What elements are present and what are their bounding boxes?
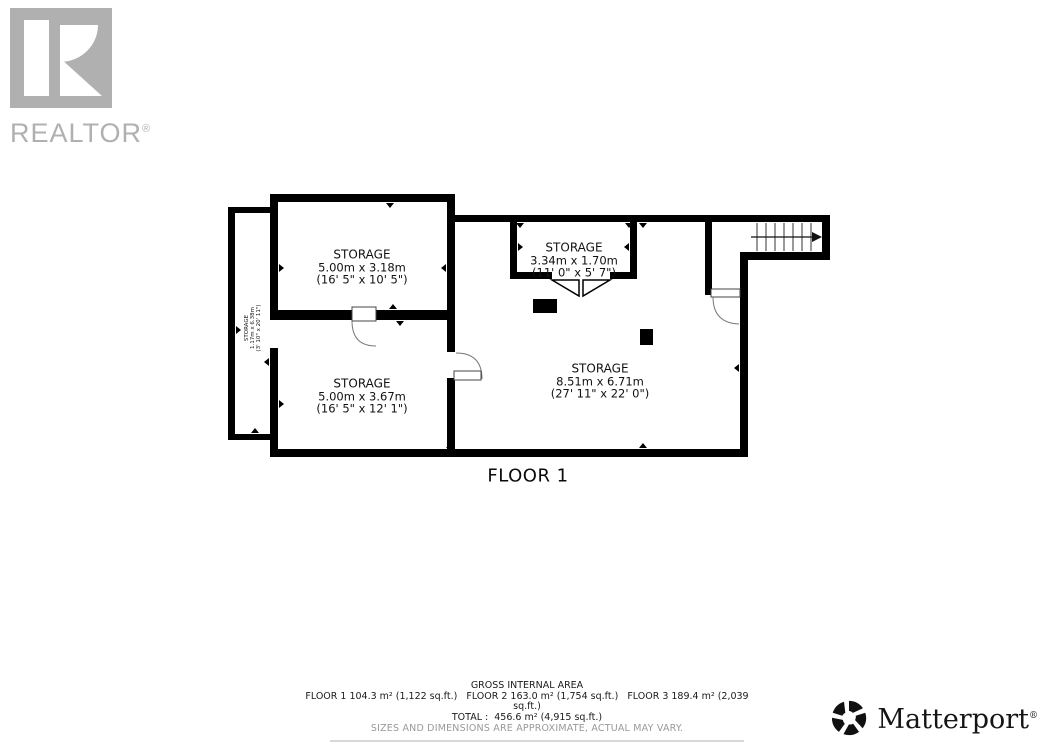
dimension-ticks	[236, 203, 739, 448]
room-size-imperial: (11' 0" x 5' 7")	[530, 266, 618, 279]
room-label-storage-main: STORAGE 8.51m x 6.71m (27' 11" x 22' 0")	[551, 362, 650, 400]
room-label-storage-bottom-left: STORAGE 5.00m x 3.67m (16' 5" x 12' 1")	[316, 377, 407, 415]
matterport-pinwheel-icon	[830, 699, 868, 737]
realtor-wordmark: REALTOR®	[10, 116, 150, 146]
door-leaf	[352, 307, 376, 321]
matterport-logo: Matterport®	[830, 697, 1038, 739]
bottom-divider	[330, 740, 744, 742]
walls	[228, 194, 830, 457]
door-swing-arc	[713, 297, 739, 324]
room-size-imperial: (27' 11" x 22' 0")	[551, 387, 650, 400]
door-swing-arc	[456, 353, 482, 379]
double-door-left-leaf	[552, 280, 579, 296]
summary-total: TOTAL : 456.6 m² (4,915 sq.ft.)	[305, 713, 748, 724]
doors	[352, 280, 740, 380]
realtor-label: REALTOR	[10, 118, 142, 148]
area-summary: GROSS INTERNAL AREA FLOOR 1 104.3 m² (1,…	[305, 681, 748, 735]
registered-trademark-icon: ®	[1029, 711, 1038, 721]
double-door-right-leaf	[583, 280, 610, 296]
room-name: STORAGE	[551, 362, 650, 375]
summary-title: GROSS INTERNAL AREA	[305, 681, 748, 692]
door-leaf	[454, 371, 481, 380]
room-size-imperial: (16' 5" x 10' 5")	[316, 273, 407, 286]
room-label-storage-top-left: STORAGE 5.00m x 3.18m (16' 5" x 10' 5")	[316, 248, 407, 286]
floor-plan-drawing	[0, 0, 1054, 745]
room-label-storage-strip: STORAGE 1.17m x 6.38m (3' 10" x 20' 11")	[244, 304, 262, 351]
door-leaf	[711, 289, 740, 297]
room-name: STORAGE	[316, 248, 407, 261]
realtor-logo: REALTOR®	[10, 8, 150, 146]
stairs	[751, 223, 822, 251]
matterport-label: Matterport	[877, 704, 1029, 735]
room-size-imperial: (3' 10" x 20' 11")	[256, 304, 262, 351]
realtor-block-r-icon	[10, 8, 112, 108]
summary-disclaimer: SIZES AND DIMENSIONS ARE APPROXIMATE, AC…	[305, 724, 748, 735]
room-name: STORAGE	[316, 377, 407, 390]
floor-title: FLOOR 1	[487, 466, 568, 487]
room-label-storage-middle: STORAGE 3.34m x 1.70m (11' 0" x 5' 7")	[530, 241, 618, 279]
room-name: STORAGE	[530, 241, 618, 254]
stairs-direction-arrow-icon	[751, 232, 822, 242]
floor-plan-page: REALTOR®	[0, 0, 1054, 745]
registered-trademark-icon: ®	[142, 123, 150, 135]
door-swing-arc	[352, 321, 376, 346]
columns	[533, 299, 653, 345]
room-size-imperial: (16' 5" x 12' 1")	[316, 402, 407, 415]
matterport-wordmark: Matterport®	[877, 697, 1038, 739]
